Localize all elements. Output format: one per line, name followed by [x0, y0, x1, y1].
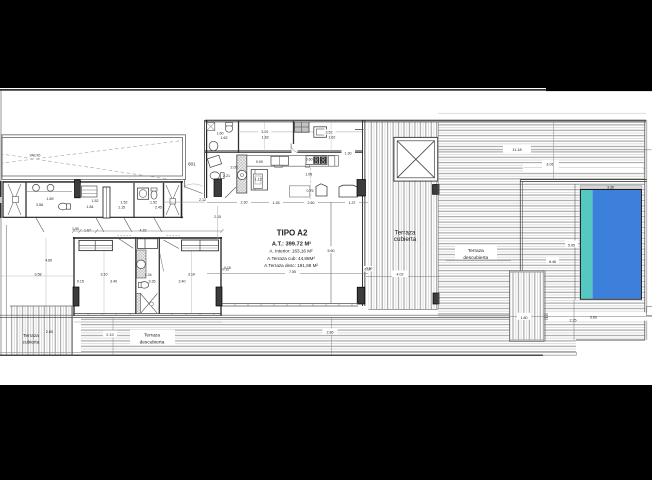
svg-text:1.84: 1.84: [87, 205, 94, 209]
svg-text:TIPO A2: TIPO A2: [277, 229, 308, 238]
svg-text:0.11: 0.11: [222, 268, 229, 272]
svg-text:2.05: 2.05: [231, 166, 238, 170]
svg-text:Terraza: Terraza: [23, 333, 39, 338]
svg-text:1.15: 1.15: [118, 205, 125, 209]
svg-text:1.12: 1.12: [255, 178, 262, 182]
svg-text:2.21: 2.21: [223, 174, 230, 178]
svg-text:1.30: 1.30: [345, 151, 352, 155]
svg-text:1.62: 1.62: [221, 136, 228, 140]
svg-text:3.35: 3.35: [149, 280, 156, 284]
svg-text:2.15: 2.15: [214, 215, 221, 219]
svg-text:1.34: 1.34: [145, 273, 152, 277]
svg-text:3.58: 3.58: [35, 273, 42, 277]
svg-text:11.18: 11.18: [512, 148, 521, 152]
svg-text:2.10: 2.10: [106, 333, 113, 337]
svg-text:3.02: 3.02: [261, 130, 268, 134]
svg-text:Terraza: Terraza: [144, 332, 160, 338]
svg-text:1.62: 1.62: [328, 135, 335, 139]
svg-text:2.45: 2.45: [155, 205, 162, 209]
svg-text:1.67: 1.67: [84, 228, 91, 232]
svg-text:Terraza: Terraza: [468, 248, 484, 254]
svg-text:2.25: 2.25: [570, 318, 577, 322]
svg-text:1.60: 1.60: [217, 132, 224, 136]
svg-text:3.10: 3.10: [188, 273, 195, 277]
svg-text:801: 801: [188, 161, 196, 166]
svg-text:5.60: 5.60: [590, 315, 597, 319]
svg-text:descubierta: descubierta: [463, 255, 488, 261]
svg-text:1.08: 1.08: [305, 173, 312, 177]
svg-text:1.62: 1.62: [262, 135, 269, 139]
svg-text:3.10: 3.10: [101, 273, 108, 277]
svg-text:2.80: 2.80: [46, 330, 53, 334]
svg-text:A.Terraza cub: 44,88M²: A.Terraza cub: 44,88M²: [267, 256, 315, 261]
svg-text:0.60: 0.60: [306, 158, 313, 162]
svg-text:descubierta: descubierta: [140, 339, 165, 345]
svg-text:4.32: 4.32: [140, 228, 147, 232]
svg-text:5.60: 5.60: [328, 249, 335, 253]
svg-text:4.02: 4.02: [397, 273, 404, 277]
svg-text:1.52: 1.52: [92, 199, 99, 203]
svg-text:1.89: 1.89: [47, 197, 54, 201]
svg-text:2.86: 2.86: [327, 330, 334, 334]
svg-text:A.T.: 399.72 M²: A.T.: 399.72 M²: [272, 240, 311, 247]
svg-text:3.06: 3.06: [546, 163, 553, 167]
svg-text:1.80: 1.80: [521, 316, 528, 320]
svg-text:2.12: 2.12: [199, 198, 206, 202]
svg-text:1.28: 1.28: [273, 201, 280, 205]
svg-text:4.60: 4.60: [45, 259, 52, 263]
svg-text:5.95: 5.95: [568, 243, 575, 247]
svg-text:VACIO: VACIO: [30, 153, 41, 157]
svg-text:cubierta: cubierta: [394, 236, 417, 243]
svg-text:1.37: 1.37: [349, 201, 356, 205]
svg-text:2.60: 2.60: [308, 201, 315, 205]
svg-text:3.58: 3.58: [36, 203, 43, 207]
svg-text:A.Terraza desc: 191,68 M²: A.Terraza desc: 191,68 M²: [264, 263, 318, 268]
svg-text:1.52: 1.52: [121, 201, 128, 205]
svg-text:7.55: 7.55: [289, 270, 296, 274]
svg-text:3.40: 3.40: [179, 280, 186, 284]
svg-text:8.46: 8.46: [549, 260, 556, 264]
svg-text:3.52: 3.52: [326, 130, 333, 134]
svg-text:0.10: 0.10: [366, 267, 373, 271]
svg-text:0.90: 0.90: [256, 160, 263, 164]
svg-text:1.52: 1.52: [150, 200, 157, 204]
svg-text:2.30: 2.30: [241, 201, 248, 205]
svg-text:0.75: 0.75: [307, 189, 314, 193]
svg-text:0.15: 0.15: [77, 280, 84, 284]
svg-text:1.90: 1.90: [72, 227, 79, 231]
svg-text:3.40: 3.40: [110, 280, 117, 284]
svg-text:cubierta: cubierta: [23, 340, 40, 345]
svg-text:A. Interior: 163,16 M²: A. Interior: 163,16 M²: [269, 248, 313, 253]
